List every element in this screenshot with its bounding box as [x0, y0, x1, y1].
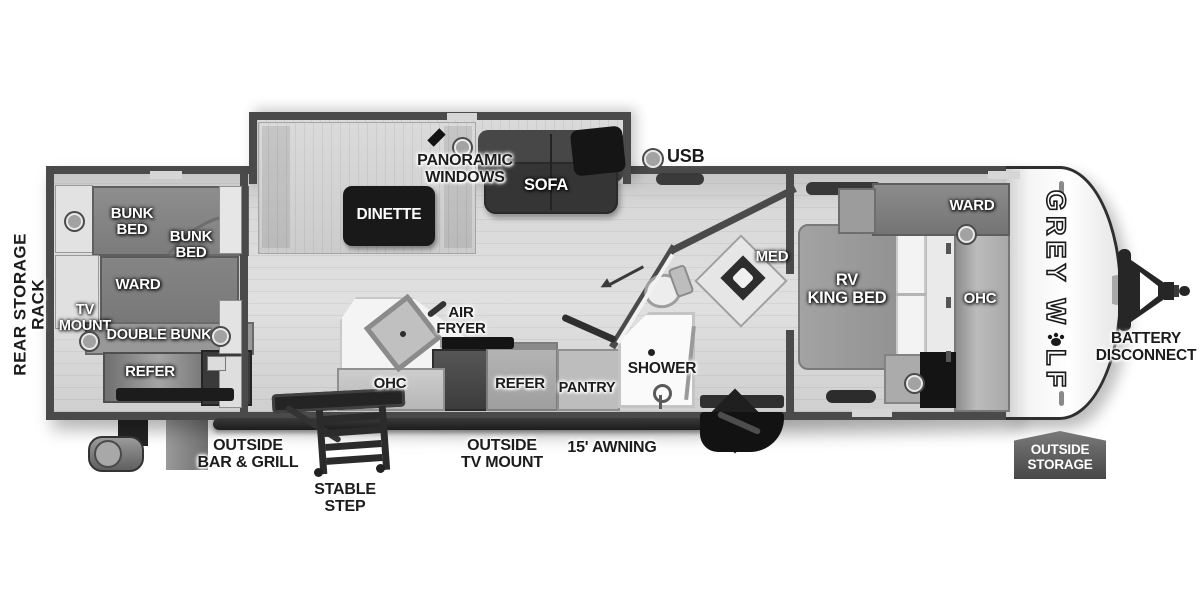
- brand-suffix: LF: [1041, 349, 1071, 392]
- usb-port-icon: [454, 139, 471, 156]
- awning-bar: [213, 418, 759, 430]
- shower-handle: [653, 384, 672, 403]
- bunkroom-outdoor-kitchen-sink: [207, 356, 226, 371]
- stable-step-label: STABLE STEP: [298, 481, 392, 516]
- stove-burner-bar: [440, 337, 514, 349]
- window-slot: [852, 409, 892, 417]
- rear-storage-rack-label: REAR STORAGE RACK: [12, 219, 49, 389]
- usb-port-icon: [958, 226, 975, 243]
- kitchen-sink-drain: [400, 331, 406, 337]
- paw-icon: [1046, 329, 1066, 349]
- floorplan-canvas: REAR STORAGE RACK GREY WLF BATTERY DISCO…: [0, 0, 1200, 600]
- brand-prefix: GREY W: [1041, 190, 1071, 329]
- usb-legend-label: USB: [667, 147, 727, 166]
- king-bed: [798, 224, 900, 370]
- window: [656, 173, 704, 185]
- ladder-foot: [314, 468, 323, 477]
- window-slot: [988, 171, 1020, 179]
- bedroom-ohc: [954, 218, 1010, 412]
- window-slot: [447, 113, 477, 120]
- dinette-table: [343, 186, 435, 246]
- bunkroom-ward-panel: [55, 255, 99, 329]
- usb-legend-icon: [644, 150, 662, 168]
- rear-rack-roller-cap: [94, 440, 122, 468]
- rail-latch: [946, 297, 951, 308]
- sofa-seam: [550, 134, 552, 210]
- brand-logo: GREY WLF: [1040, 190, 1071, 406]
- bedroom-ward: [872, 183, 1010, 236]
- shower-handle-stem: [659, 395, 662, 409]
- stabilizer-leg: [166, 420, 208, 470]
- bedroom-wall-top: [786, 174, 794, 274]
- usb-port-icon: [212, 328, 229, 345]
- bedroom-ward-cab: [838, 188, 876, 234]
- pantry: [557, 349, 620, 411]
- outside-storage-badge: [1014, 431, 1106, 479]
- dinette-bench-left: [262, 126, 290, 248]
- sofa-corner-cushion: [570, 125, 627, 176]
- bedroom-bench: [826, 390, 876, 403]
- king-bed-pillow-split: [896, 293, 926, 296]
- shower-drain: [648, 349, 655, 356]
- partition-cabinet-top: [219, 186, 242, 254]
- partition-cabinet-mid: [219, 300, 242, 354]
- ladder-foot: [376, 464, 385, 473]
- bunkroom-slide-tray: [116, 388, 234, 401]
- usb-port-icon: [906, 375, 923, 392]
- rail-latch: [946, 243, 951, 254]
- rail-latch: [946, 351, 951, 362]
- hitch-icon: [1112, 246, 1192, 336]
- bedroom-wall-bottom: [786, 330, 794, 412]
- usb-port-icon: [66, 213, 83, 230]
- usb-port-icon: [81, 333, 98, 350]
- window-slot: [150, 171, 182, 179]
- bed-slide-rail: [926, 222, 956, 370]
- kitchen-refer: [486, 342, 558, 411]
